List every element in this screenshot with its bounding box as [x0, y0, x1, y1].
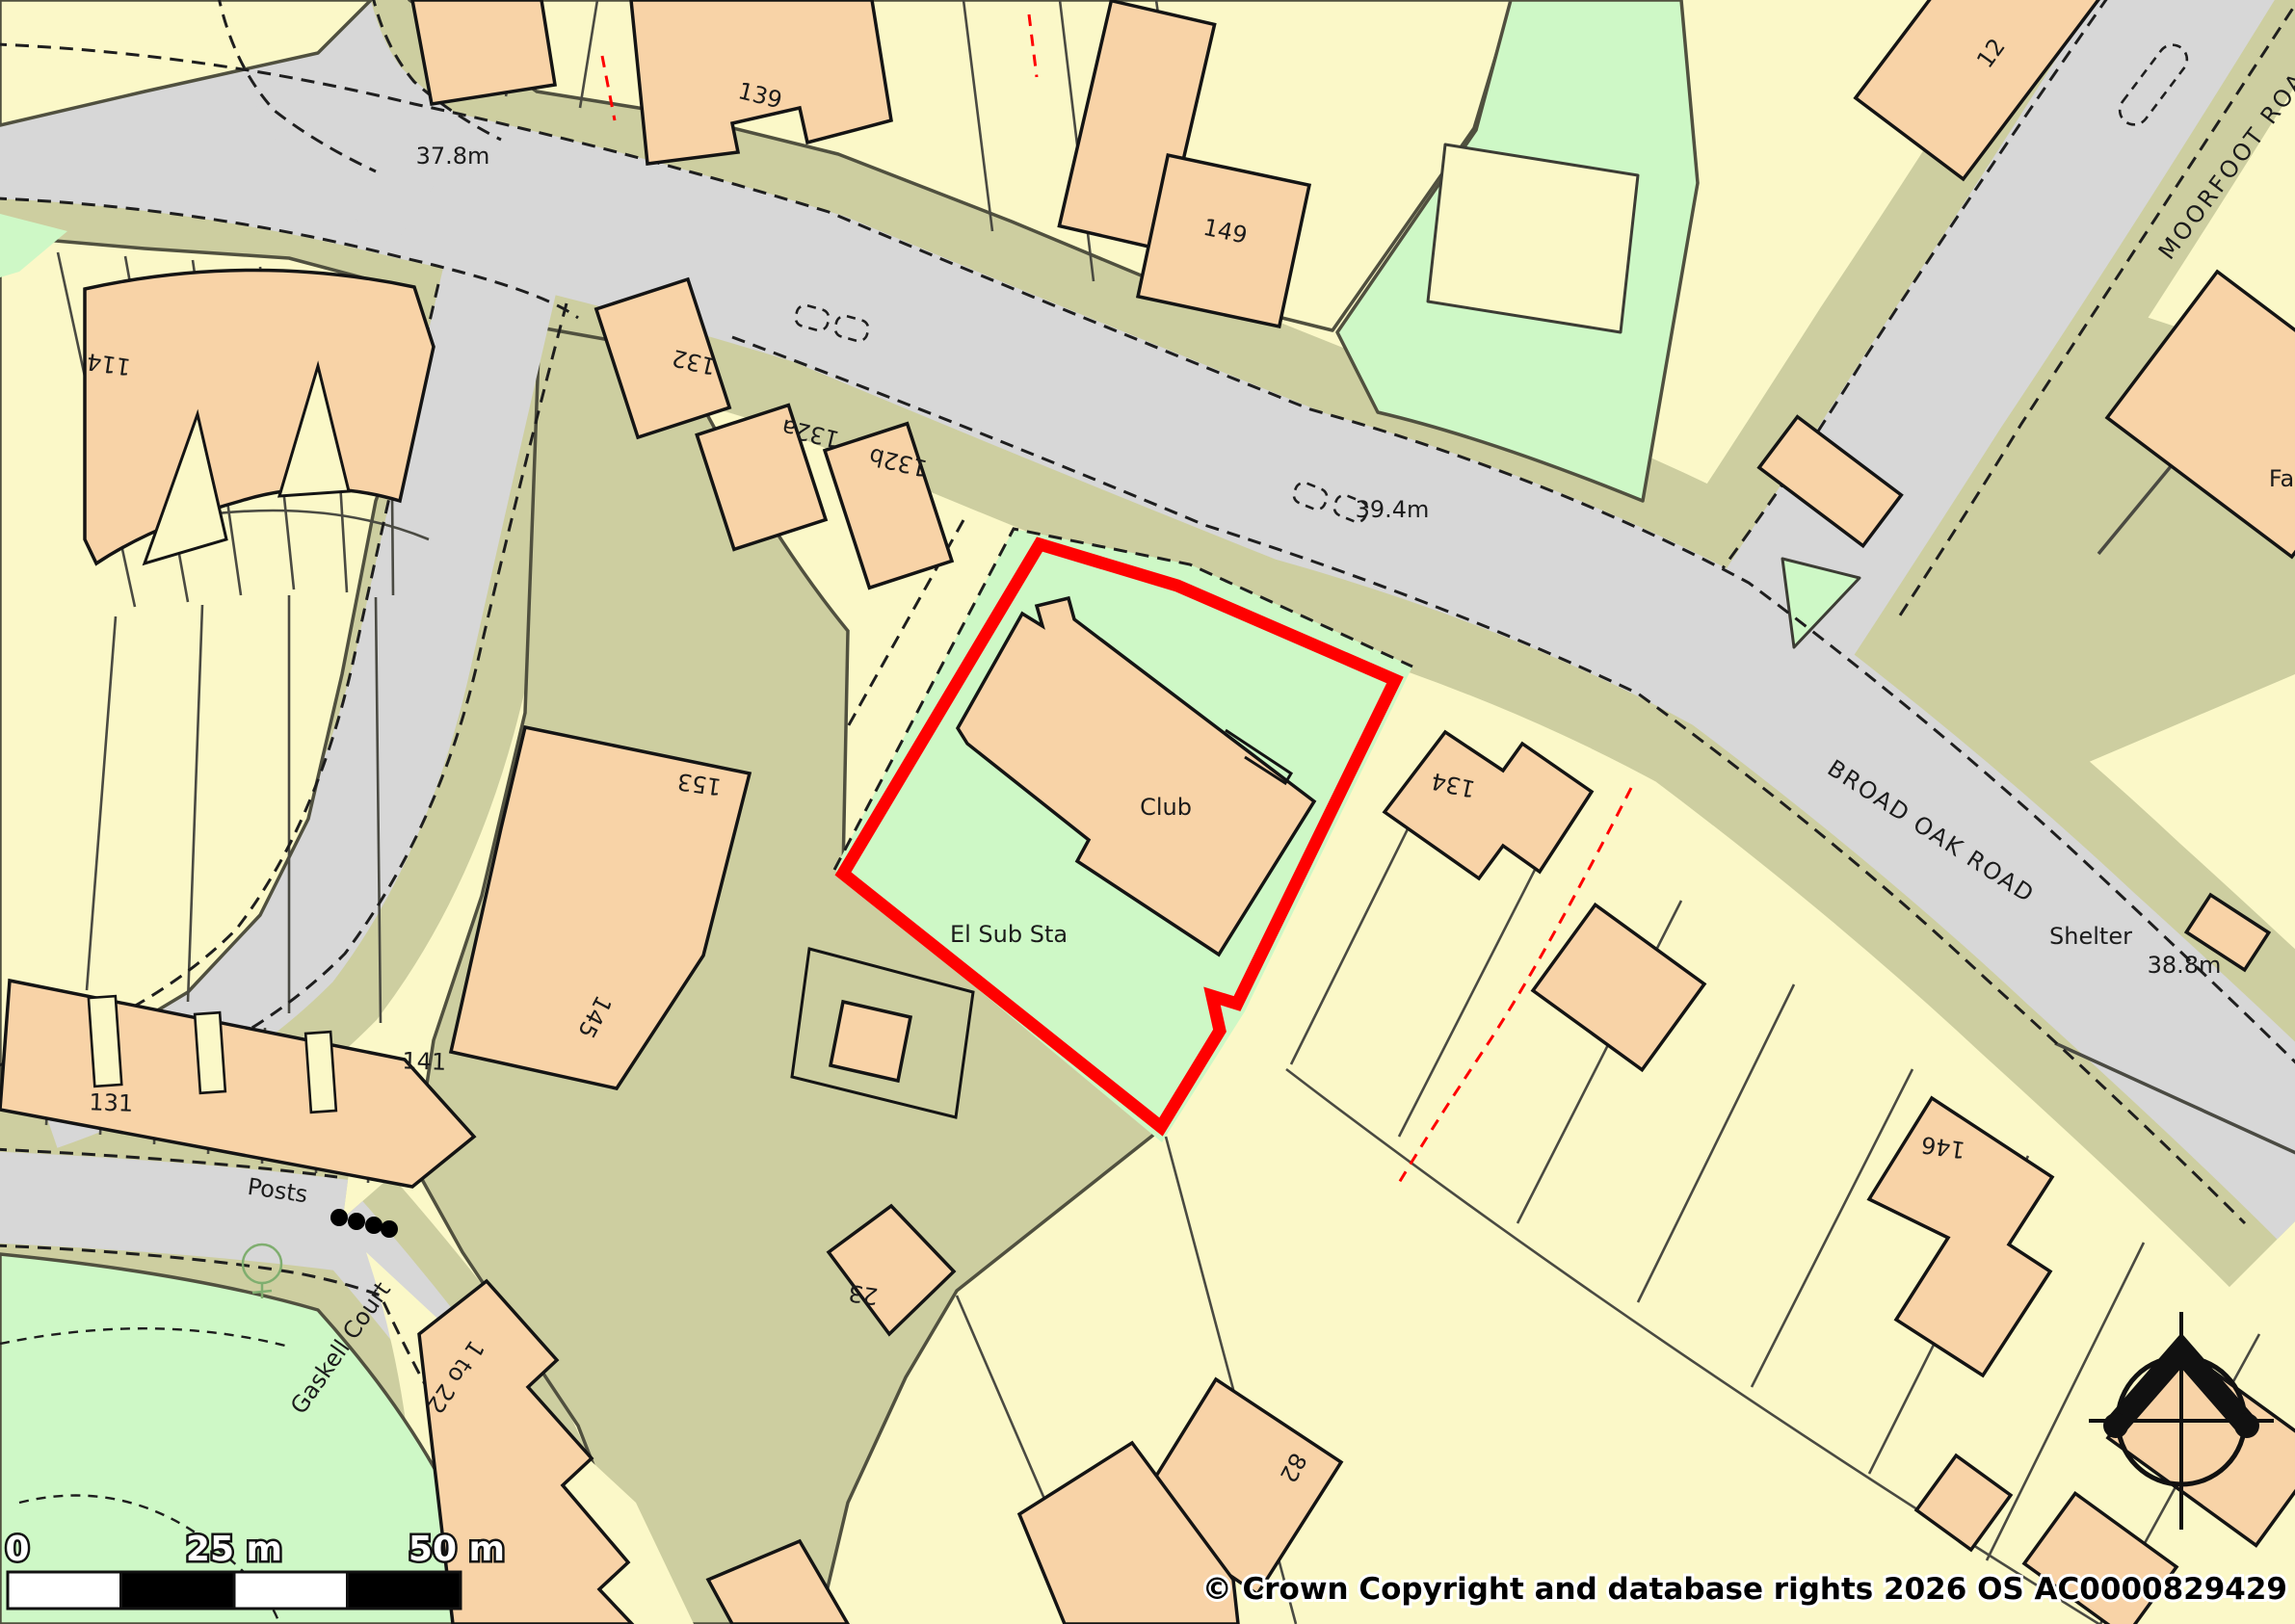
site-plan-map: 37.8m13914912MOORFOOT ROAD39.4m132132a13… [0, 0, 2295, 1624]
map-label-num-131: 131 [89, 1088, 134, 1117]
building-el-sub-sta [831, 1002, 910, 1081]
scale-end: 50 m [409, 1530, 505, 1569]
map-viewport: 37.8m13914912MOORFOOT ROAD39.4m132132a13… [0, 0, 2295, 1624]
map-label-shelter-label: Shelter [2049, 923, 2132, 950]
copyright-text: © Crown Copyright and database rights 20… [1202, 1572, 2287, 1607]
map-label-spot-39-4: 39.4m [1356, 496, 1430, 523]
building-top-strip [412, 0, 555, 104]
map-label-club-label: Club [1140, 794, 1192, 821]
map-label-spot-37-8: 37.8m [416, 143, 490, 170]
map-label-num-23: 23 [847, 1279, 880, 1310]
map-label-el-sub-sta: El Sub Sta [950, 921, 1068, 948]
scale-mid: 25 m [186, 1530, 282, 1569]
map-label-spot-38-8: 38.8m [2148, 952, 2222, 979]
map-label-num-fa: Fa [2269, 465, 2294, 492]
scale-zero: 0 [5, 1530, 29, 1569]
map-label-num-141: 141 [402, 1047, 447, 1076]
